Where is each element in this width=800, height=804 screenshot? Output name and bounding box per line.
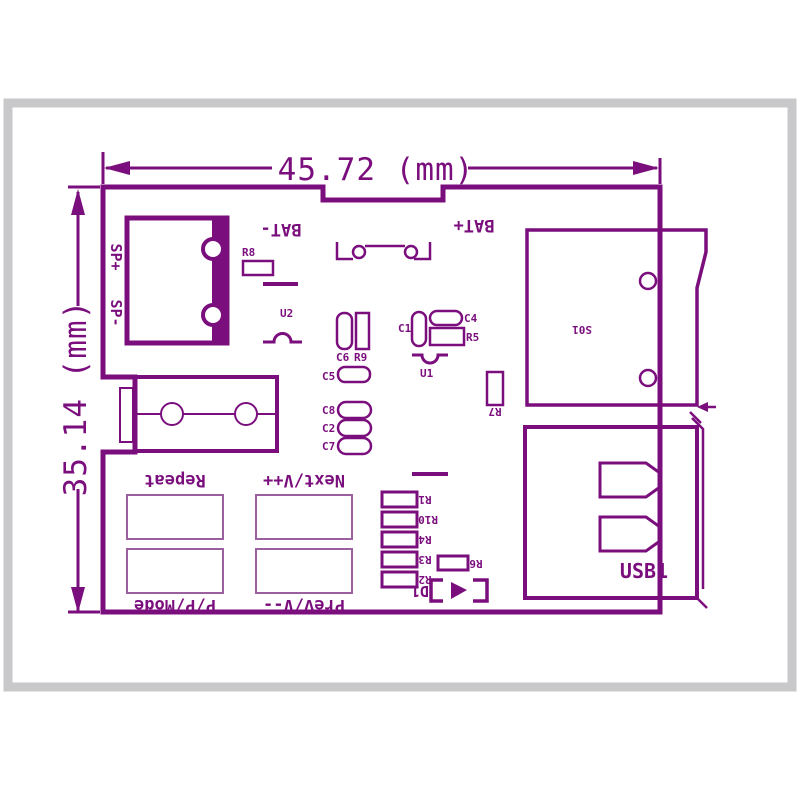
label-r6: R6 [469, 557, 483, 570]
label-r7: R7 [488, 405, 501, 418]
label-s01: S01 [572, 323, 592, 336]
label-r3: R3 [418, 553, 431, 566]
speaker-pad-1 [203, 239, 223, 259]
label-next: Next/V++ [263, 470, 345, 490]
label-c8: C8 [322, 404, 335, 417]
label-c5: C5 [322, 370, 335, 383]
speaker-pad-2 [203, 305, 223, 325]
label-r9: R9 [354, 351, 367, 364]
label-usb1: USB1 [620, 559, 668, 583]
height-dimension-label: 35.14 (mm) [58, 300, 94, 497]
label-c4: C4 [464, 312, 478, 325]
label-r4: R4 [418, 533, 432, 546]
label-c7: C7 [322, 440, 335, 453]
label-u1: U1 [420, 367, 434, 380]
jack-hole-2 [235, 403, 257, 425]
label-r10: R10 [418, 513, 438, 526]
label-r5: R5 [466, 331, 479, 344]
label-r8: R8 [242, 246, 255, 259]
pcb-dimension-diagram: 45.72 (mm) 35.14 (mm) SP+ SP- BAT- BAT+ … [0, 0, 800, 800]
label-sp-minus: SP- [107, 299, 125, 326]
label-bat-plus: BAT+ [454, 215, 495, 235]
label-prev: Prev/V-- [263, 595, 345, 615]
label-repeat: Repeat [144, 470, 205, 490]
label-c1: C1 [398, 322, 412, 335]
label-sp-plus: SP+ [107, 243, 125, 270]
label-bat-minus: BAT- [261, 219, 302, 239]
jack-hole-1 [161, 403, 183, 425]
label-c2: C2 [322, 422, 335, 435]
label-u2: U2 [280, 307, 293, 320]
label-r1: R1 [418, 493, 432, 506]
label-mode: P/P/Mode [134, 595, 216, 615]
diagram-svg: 45.72 (mm) 35.14 (mm) SP+ SP- BAT- BAT+ … [0, 0, 800, 800]
label-d1: D1 [411, 582, 429, 600]
label-c6: C6 [336, 351, 350, 364]
width-dimension-label: 45.72 (mm) [278, 152, 475, 188]
